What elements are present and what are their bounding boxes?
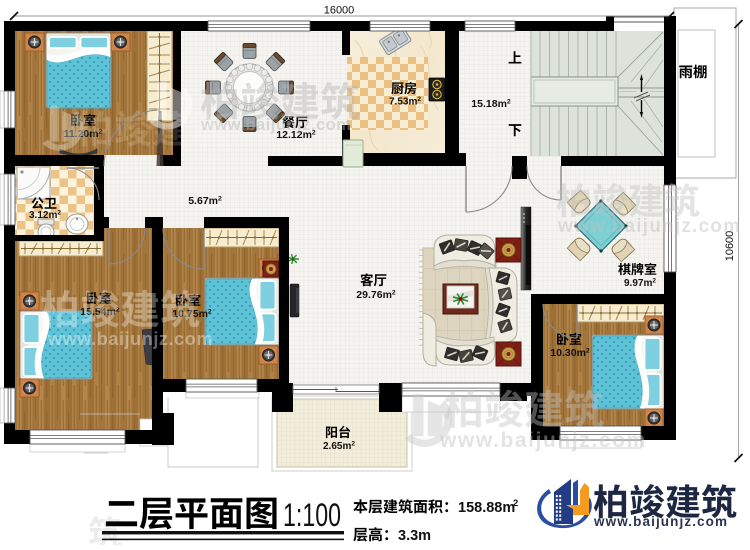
svg-text:158.88m: 158.88m [458, 500, 515, 516]
svg-text:www.baijunjz.com: www.baijunjz.com [557, 216, 741, 237]
svg-text:www.baijunjz.com: www.baijunjz.com [47, 329, 213, 349]
svg-text:29.76m2: 29.76m2 [356, 289, 396, 301]
svg-text:9.97m2: 9.97m2 [624, 278, 656, 290]
svg-text:3.12m2: 3.12m2 [29, 210, 61, 222]
svg-text:www.baijunjz.com: www.baijunjz.com [439, 429, 647, 452]
svg-text:15.18m2: 15.18m2 [471, 98, 511, 110]
svg-text:3.3m: 3.3m [398, 528, 431, 544]
svg-text:www.baijunjz.com: www.baijunjz.com [593, 514, 728, 529]
svg-text:2.65m2: 2.65m2 [323, 441, 355, 453]
svg-text:1:100: 1:100 [283, 497, 341, 533]
svg-text:7.53m2: 7.53m2 [389, 96, 421, 108]
svg-text:10.30m2: 10.30m2 [550, 347, 590, 359]
svg-text:5.67m2: 5.67m2 [188, 195, 222, 207]
svg-text:16000: 16000 [324, 5, 355, 17]
svg-text:www.baijunjz.com: www.baijunjz.com [200, 116, 351, 134]
svg-text:2: 2 [513, 498, 518, 509]
